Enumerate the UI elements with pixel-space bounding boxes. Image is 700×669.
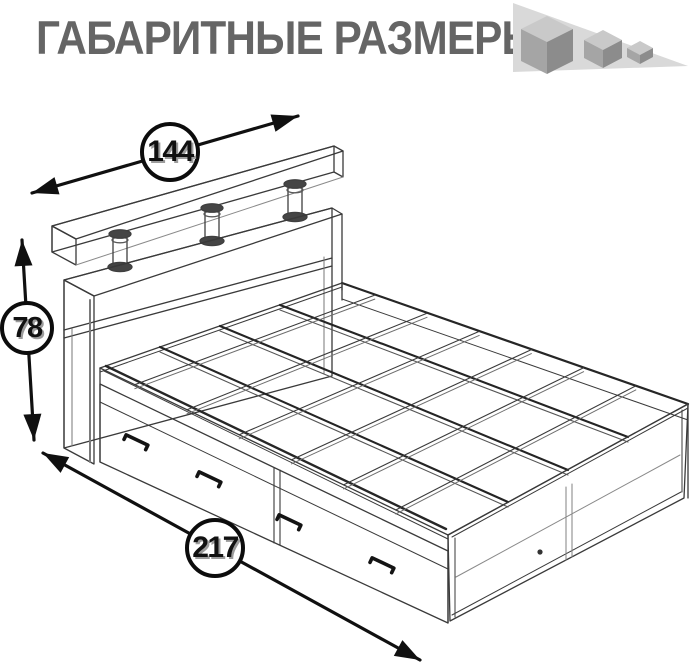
- bed-platform-grid: [100, 283, 688, 623]
- arrowhead-icon: [394, 640, 420, 660]
- dimension-width: 144 144: [32, 115, 298, 195]
- dimension-height-label: 78: [12, 312, 43, 344]
- dimension-length-label: 217: [192, 531, 238, 564]
- pedestal-middle: [200, 204, 224, 246]
- arrowhead-icon: [23, 414, 41, 440]
- drawer-handle-icon: [124, 435, 148, 450]
- dimension-height: 78 78: [2, 240, 52, 440]
- dimension-diagram-page: ГАБАРИТНЫЕ РАЗМЕРЫ: [0, 0, 700, 669]
- drawer-handle-icon: [197, 472, 221, 487]
- foot-box: [448, 404, 688, 621]
- arrowhead-icon: [43, 453, 69, 473]
- arrowhead-icon: [15, 240, 33, 266]
- arrowhead-icon: [271, 115, 299, 132]
- drawer-handle-icon: [370, 558, 394, 573]
- arrowhead-icon: [32, 177, 60, 194]
- drawer-handles: [124, 435, 394, 573]
- dimension-width-label: 144: [147, 135, 194, 168]
- dimension-length: 217 217: [43, 453, 420, 660]
- drawer-handle-icon: [277, 515, 301, 530]
- bed-isometric-drawing: 144 144 78 78 217: [0, 0, 700, 669]
